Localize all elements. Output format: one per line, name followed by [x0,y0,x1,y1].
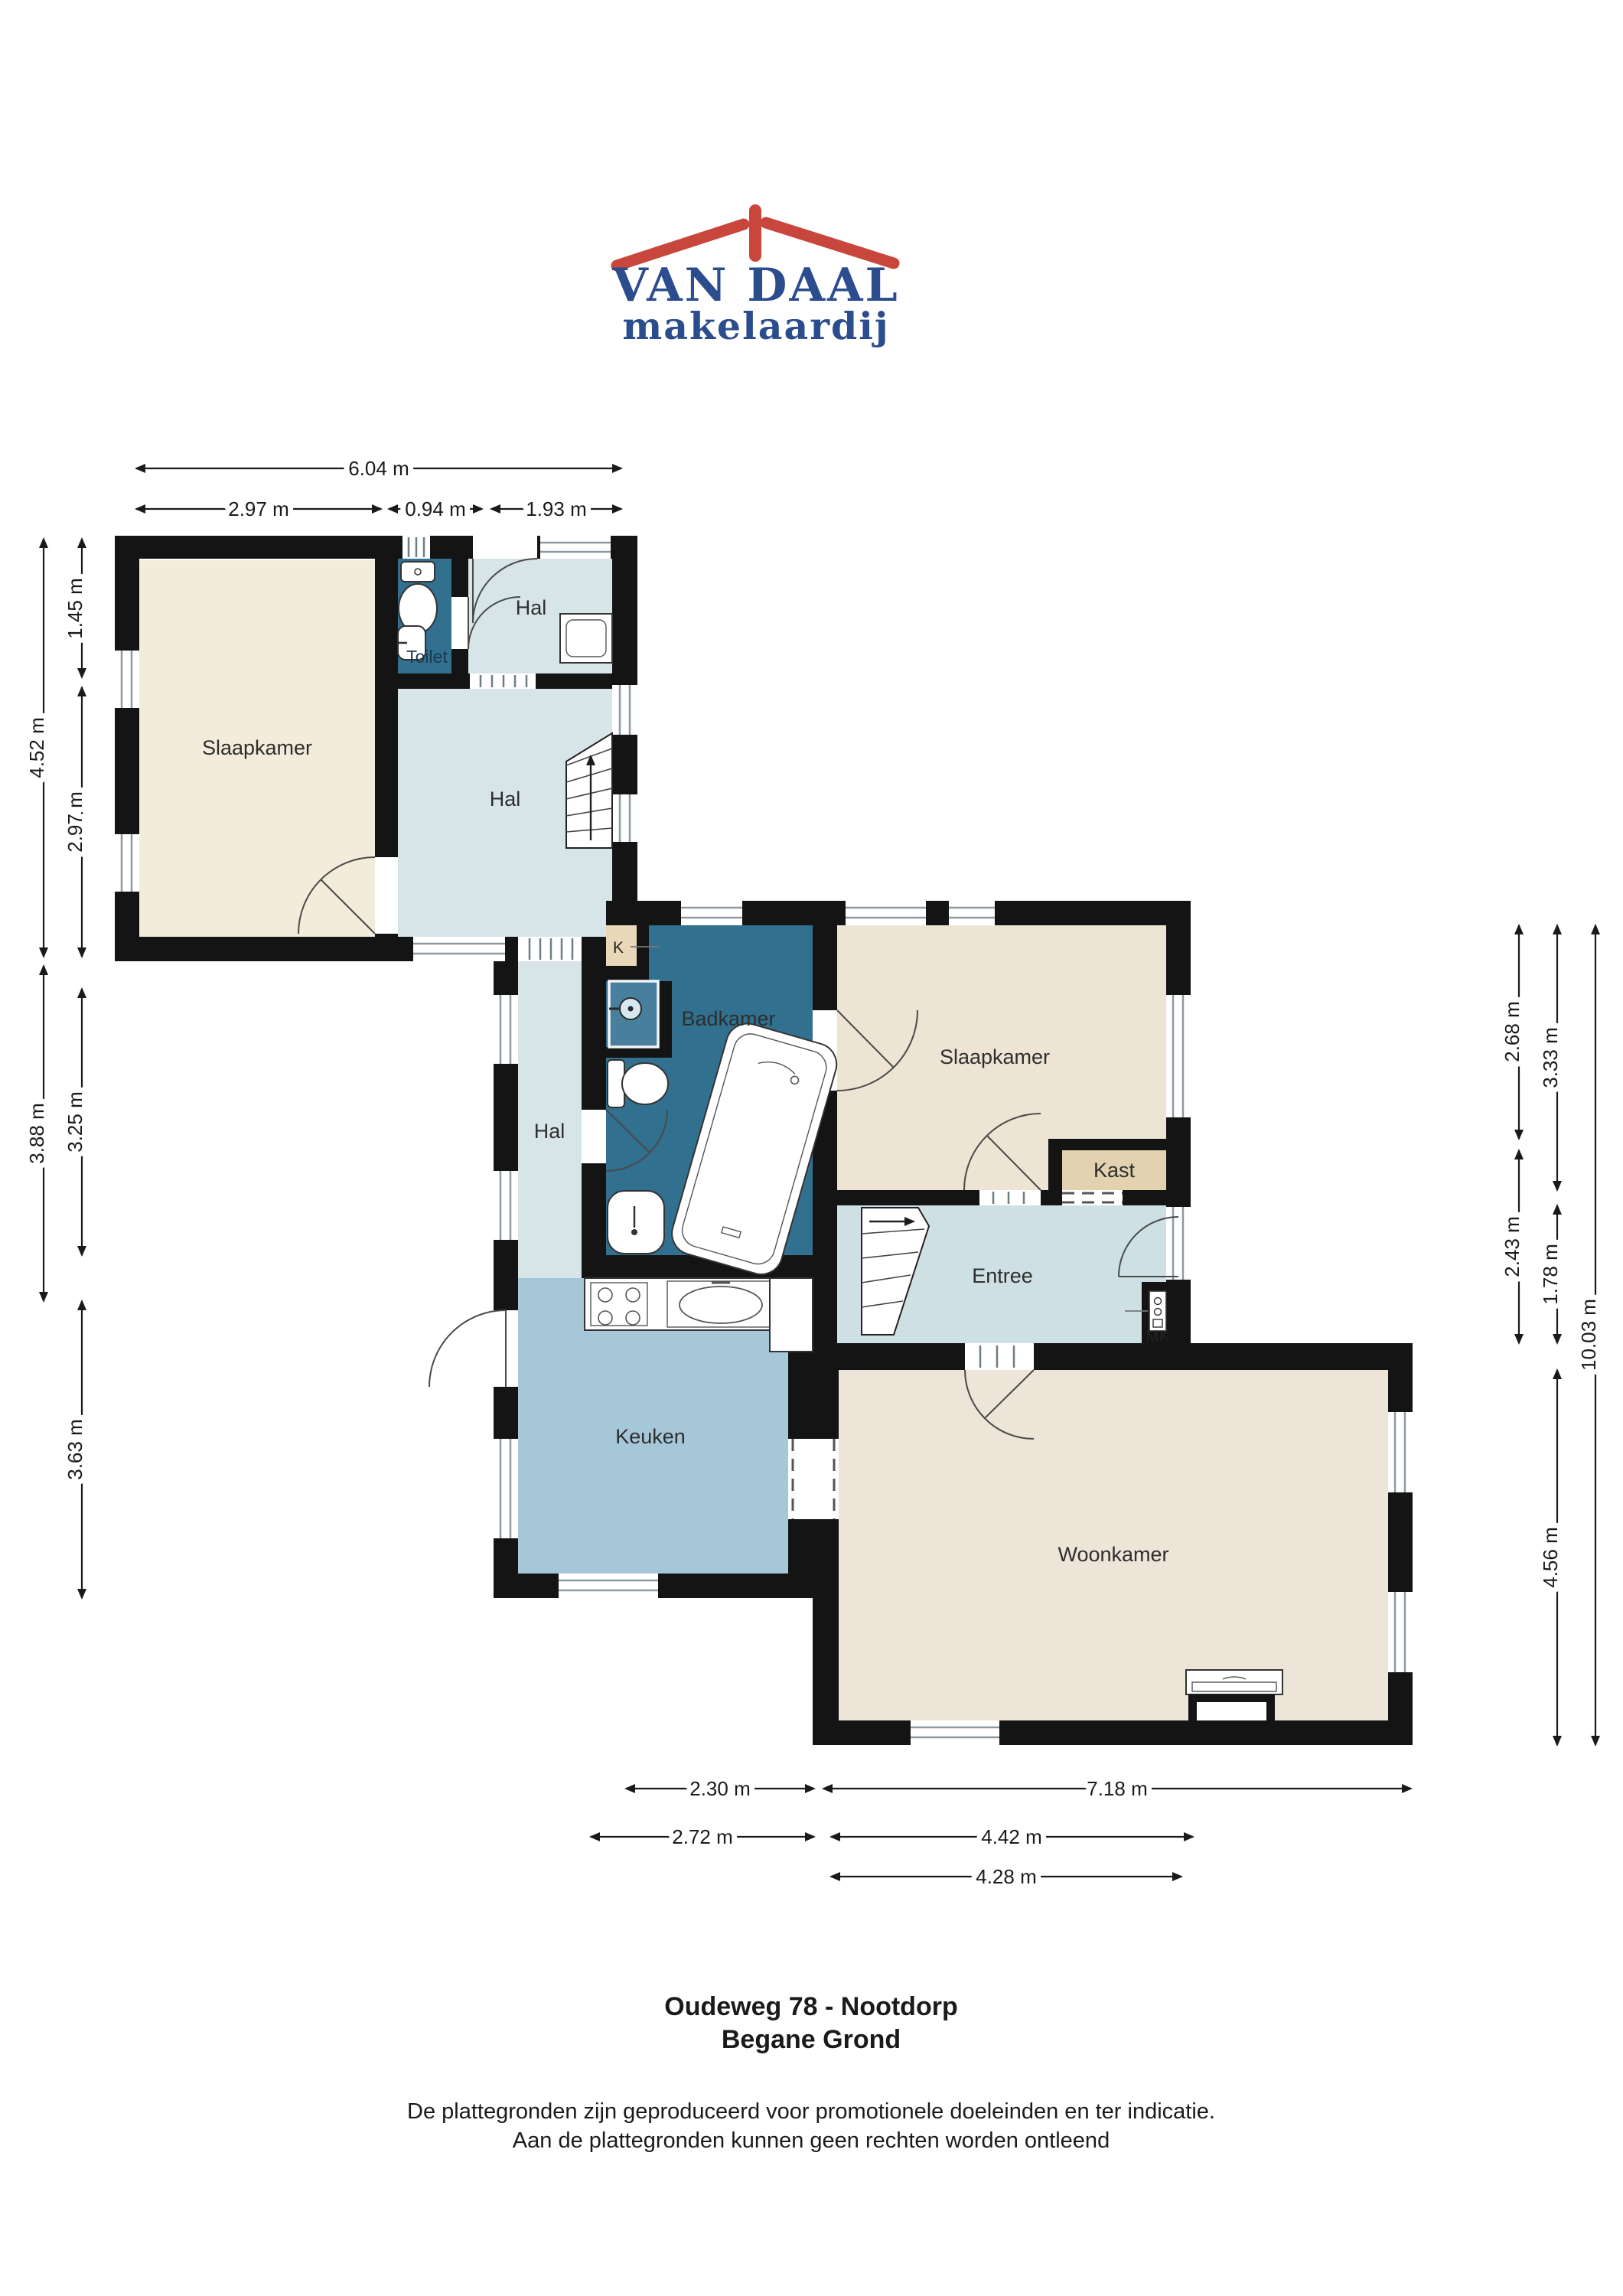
window [413,937,505,961]
label-mk: MK [1146,1328,1170,1345]
label-keuken: Keuken [615,1425,686,1448]
window [494,1439,518,1538]
dim-right-col2-2: 1.78 m [1539,1205,1562,1343]
disclaimer-line-2: Aan de plattegronden kunnen geen rechten… [513,2128,1110,2153]
dim-label: 4.52 m [25,717,48,778]
disclaimer-line-1: De plattegronden zijn geproduceerd voor … [407,2099,1215,2124]
dim-label: 2.43 m [1501,1216,1524,1277]
dim-label: 7.18 m [1087,1777,1148,1800]
label-slaapkamer-1: Slaapkamer [202,736,312,759]
window [1388,1412,1413,1492]
door-keuken-woonkamer-opening [788,1439,839,1519]
dim-bottom-row2-1: 2.72 m [591,1825,814,1848]
label-hal-gang: Hal [534,1120,565,1143]
window [115,651,139,708]
dim-label: 2.72 m [672,1825,733,1848]
dim-right-col1-1: 2.68 m [1501,925,1524,1139]
fridge-icon [770,1278,813,1352]
label-entree: Entree [972,1264,1033,1287]
dim-left-outer-2: 3.88 m [25,966,48,1301]
window [1166,995,1191,1117]
plan-address: Oudeweg 78 - Nootdorp [664,1992,957,2021]
threshold [470,673,536,689]
wall [658,981,672,1047]
fireplace-icon [1186,1670,1282,1720]
window [1388,1592,1413,1672]
dim-right-col2-3: 4.56 m [1539,1370,1562,1745]
bathroom-sink-icon [608,1191,664,1254]
wall [813,1343,1413,1370]
window [612,794,637,842]
label-hal: Hal [490,788,521,810]
window [115,834,139,892]
dim-right-total: 10.03 m [1577,925,1600,1745]
dim-left-inner-3: 3.25 m [64,989,86,1255]
wall [1048,1139,1062,1205]
dim-right-col1-2: 2.43 m [1501,1150,1524,1343]
threshold [518,937,582,961]
dim-left-inner-1: 1.45 m [64,539,86,677]
wall [813,1720,1413,1745]
window [559,1574,658,1598]
title-block: Oudeweg 78 - Nootdorp Begane Grond De pl… [407,1992,1215,2153]
dim-bottom-row2-2: 4.42 m [831,1825,1193,1848]
dim-label: 2.97 m [228,497,289,520]
wall [813,1370,839,1745]
window [494,1171,518,1240]
dim-top-total: 6.04 m [136,457,621,480]
dim-top-part-1: 2.97 m [136,497,381,520]
toilet-fixture-icon [399,562,437,633]
logo-chimney-icon [749,204,761,262]
window [846,901,926,925]
label-kast: Kast [1093,1159,1136,1182]
label-badkamer: Badkamer [681,1007,775,1030]
dim-label: 2.97 m [64,791,86,853]
window [612,685,637,735]
window [540,536,611,559]
dim-label: 2.68 m [1501,1001,1524,1062]
door-keuken-exterior [429,1310,518,1387]
floorplan-canvas: VAN DAAL makelaardij [0,0,1623,2296]
dim-bottom-row3-1: 4.28 m [831,1865,1181,1888]
window [681,901,742,925]
door-kast-opening [1062,1190,1123,1205]
dim-label: 1.93 m [526,497,587,520]
dim-label: 4.28 m [976,1865,1037,1888]
dim-bottom-row1-1: 2.30 m [626,1777,814,1800]
dim-label: 3.25 m [64,1091,86,1153]
label-slaapkamer-2: Slaapkamer [940,1045,1050,1068]
window [949,901,995,925]
window [911,1720,999,1745]
label-k-closet: K [613,939,624,957]
dim-label: 3.33 m [1539,1027,1562,1088]
dim-label: 1.45 m [64,578,86,639]
window [494,995,518,1064]
dim-label: 10.03 m [1577,1299,1600,1371]
label-woonkamer: Woonkamer [1058,1543,1168,1566]
wall [115,536,139,961]
dim-left-outer-1: 4.52 m [25,539,48,957]
dim-top-part-2: 0.94 m [389,497,482,520]
dim-label: 4.56 m [1539,1527,1562,1588]
label-toilet: Toilet [406,647,448,667]
logo-tagline: makelaardij [622,304,889,348]
dim-bottom-row1-2: 7.18 m [823,1777,1411,1800]
dim-label: 0.94 m [405,497,466,520]
wall [637,925,649,981]
shower-icon [609,981,658,1047]
dim-label: 2.30 m [689,1777,751,1800]
bathroom-toilet-icon [608,1060,668,1107]
dim-label: 3.88 m [25,1103,48,1164]
washer-icon [560,614,612,663]
dim-label: 3.63 m [64,1419,86,1480]
logo: VAN DAAL makelaardij [611,204,900,348]
dim-label: 1.78 m [1539,1244,1562,1305]
dim-label: 4.42 m [981,1825,1042,1848]
logo-roof-right-icon [766,223,894,263]
wall [1048,1139,1191,1150]
dim-top-part-3: 1.93 m [491,497,621,520]
dim-left-inner-2: 2.97 m [64,687,86,957]
wall [582,937,606,961]
dim-left-inner-4: 3.63 m [64,1301,86,1598]
wall [813,1190,837,1343]
dim-right-col2-1: 3.33 m [1539,925,1562,1190]
plan-floor: Begane Grond [722,2025,901,2054]
label-hal-boven: Hal [516,596,547,619]
wall [606,1047,672,1058]
dim-label: 6.04 m [348,457,409,480]
window [402,536,430,559]
